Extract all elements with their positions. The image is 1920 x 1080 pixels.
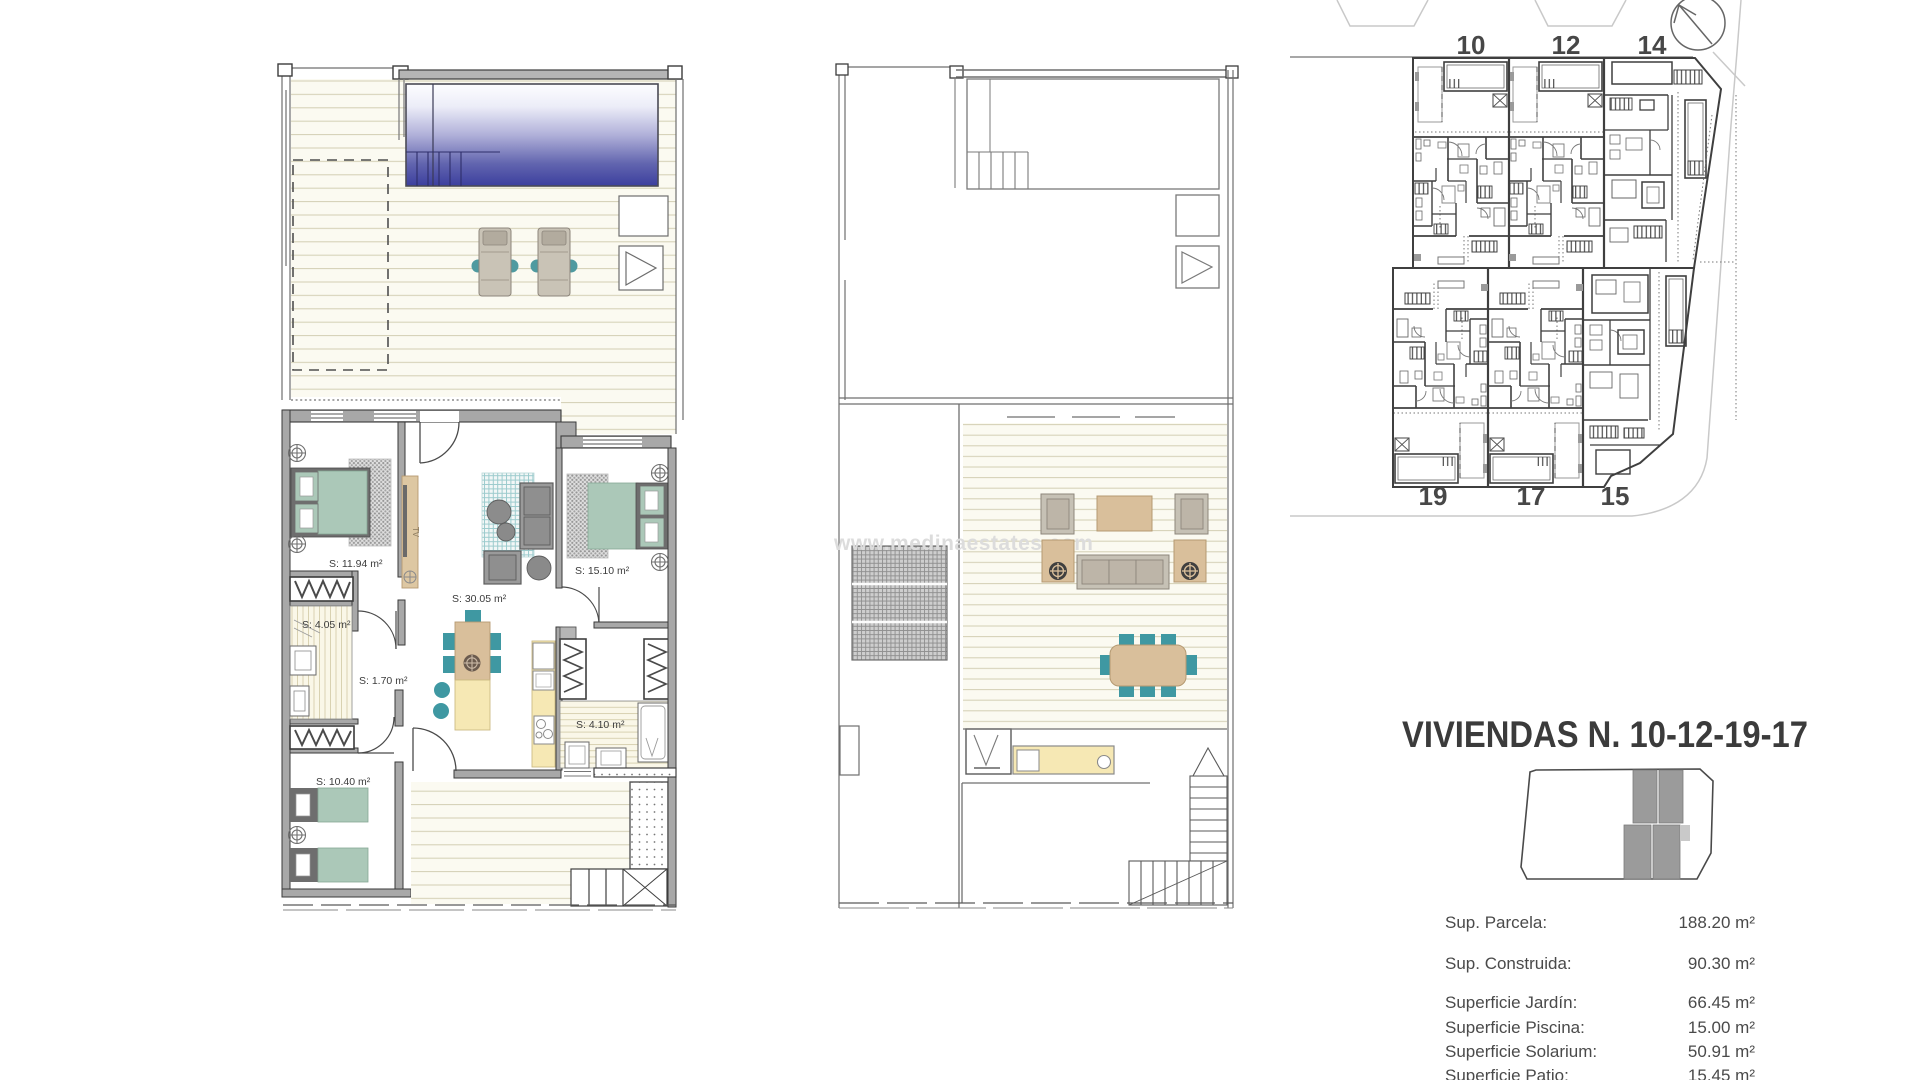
svg-text:15.00 m²: 15.00 m² <box>1688 1018 1755 1037</box>
svg-text:14: 14 <box>1638 30 1667 60</box>
svg-text:Superficie Jardín:: Superficie Jardín: <box>1445 993 1577 1012</box>
svg-text:TV: TV <box>411 527 420 538</box>
svg-text:Superficie Solarium:: Superficie Solarium: <box>1445 1042 1597 1061</box>
svg-text:S: 4.05 m²: S: 4.05 m² <box>302 619 351 631</box>
svg-text:10: 10 <box>1457 30 1486 60</box>
svg-text:VIVIENDAS N. 10-12-19-17: VIVIENDAS N. 10-12-19-17 <box>1402 714 1808 755</box>
svg-text:Sup. Parcela:: Sup. Parcela: <box>1445 913 1547 932</box>
svg-text:S: 11.94 m²: S: 11.94 m² <box>329 558 383 570</box>
svg-text:Superficie Patio:: Superficie Patio: <box>1445 1066 1569 1080</box>
svg-text:S: 4.10 m²: S: 4.10 m² <box>576 719 625 731</box>
svg-text:15.45 m²: 15.45 m² <box>1688 1066 1755 1080</box>
svg-text:188.20 m²: 188.20 m² <box>1678 913 1755 932</box>
svg-text:66.45 m²: 66.45 m² <box>1688 993 1755 1012</box>
svg-text:S: 10.40 m²: S: 10.40 m² <box>316 776 371 788</box>
svg-text:S: 15.10 m²: S: 15.10 m² <box>575 565 630 577</box>
svg-text:S: 30.05 m²: S: 30.05 m² <box>452 593 507 605</box>
svg-text:50.91 m²: 50.91 m² <box>1688 1042 1755 1061</box>
svg-text:Superficie Piscina:: Superficie Piscina: <box>1445 1018 1585 1037</box>
svg-text:90.30 m²: 90.30 m² <box>1688 954 1755 973</box>
svg-text:S: 1.70 m²: S: 1.70 m² <box>359 675 408 687</box>
svg-text:12: 12 <box>1552 30 1581 60</box>
svg-text:Sup. Construida:: Sup. Construida: <box>1445 954 1572 973</box>
